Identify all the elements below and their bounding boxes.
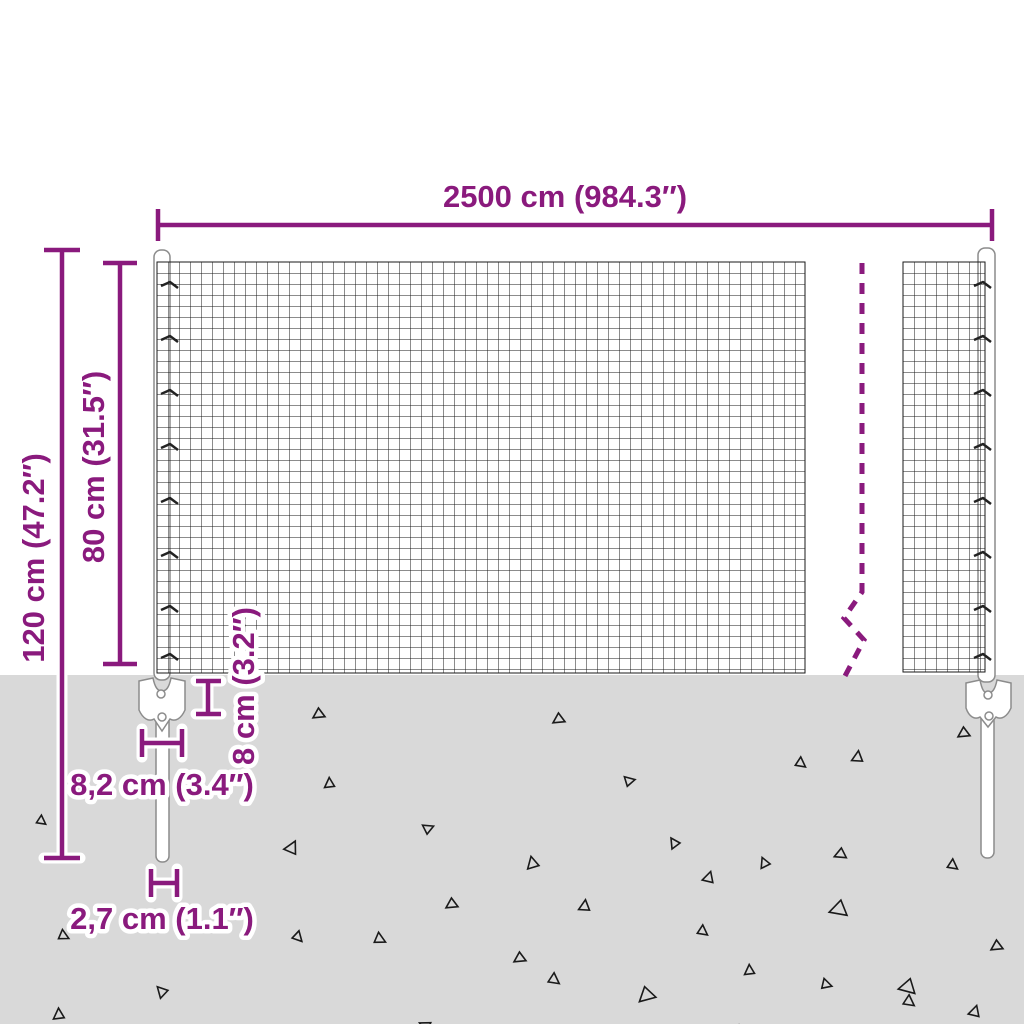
mesh-panel-right	[903, 262, 985, 672]
post-diameter-label: 2,7 cm (1.1″)	[70, 901, 254, 936]
anchor-depth-label: 8 cm (3.2″)	[226, 607, 261, 765]
plate-width-label: 8,2 cm (3.4″)	[70, 767, 254, 802]
ground-area	[0, 675, 1024, 1024]
diagram-canvas: 2500 cm (984.3″) 120 cm (47.2″) 80 cm (3…	[0, 0, 1024, 1024]
fence-dimension-diagram: 2500 cm (984.3″) 120 cm (47.2″) 80 cm (3…	[0, 0, 1024, 1024]
screw-hole-icon	[984, 691, 992, 699]
screw-hole-icon	[985, 712, 993, 720]
break-line	[844, 263, 864, 676]
fence-width-label: 2500 cm (984.3″)	[443, 179, 687, 214]
dimension-mesh-height: 80 cm (31.5″)	[76, 263, 137, 664]
screw-hole-icon	[157, 690, 165, 698]
dimension-fence-width: 2500 cm (984.3″)	[158, 179, 992, 241]
total-height-label: 120 cm (47.2″)	[16, 453, 51, 663]
mesh-height-label: 80 cm (31.5″)	[76, 371, 111, 563]
screw-hole-icon	[158, 713, 166, 721]
